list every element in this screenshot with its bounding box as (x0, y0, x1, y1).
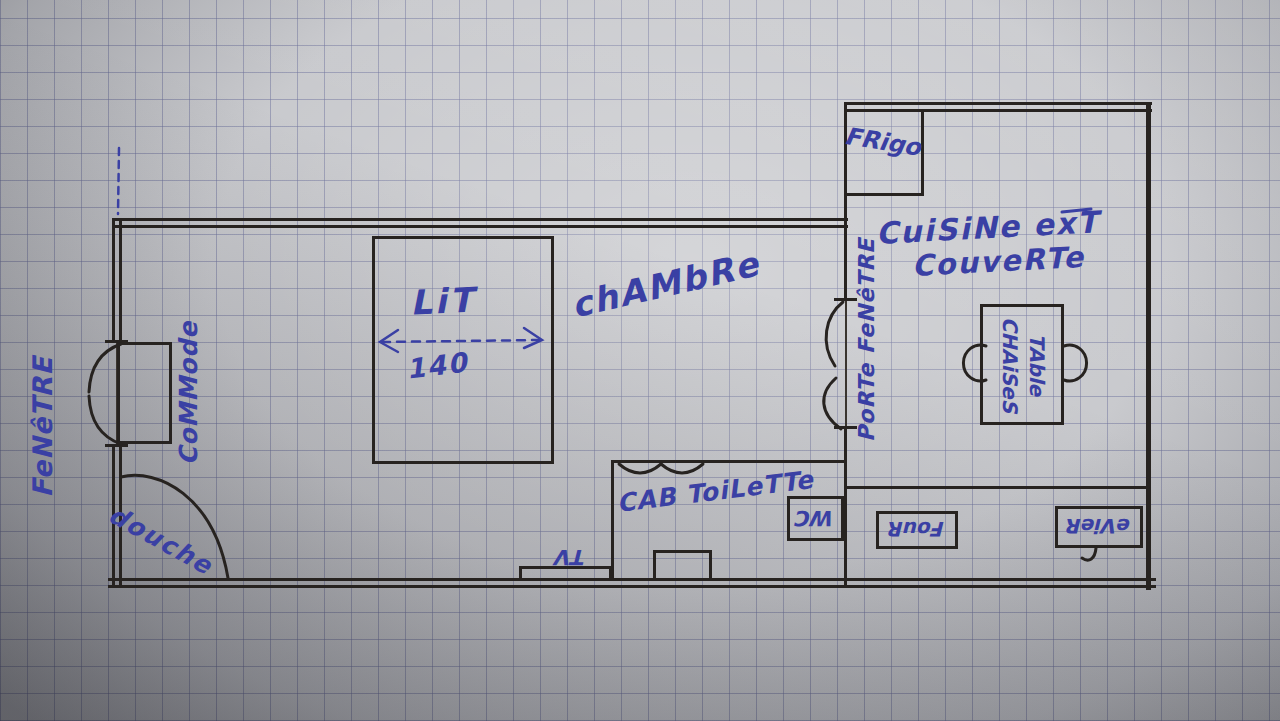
porte-fenetre-swing-top (826, 302, 843, 366)
graph-paper-photo: LiT 140 chAMbRe CAB ToiLeTTe TV WC FouR … (0, 0, 1280, 721)
window-swing-arc-bottom (89, 396, 121, 444)
label-fenetre: FeNêTRE (24, 353, 60, 501)
label-porte-fenetre: PoRTe FeNêTRE (850, 245, 882, 435)
label-tv: TV (556, 545, 587, 569)
label-lit: LiT (409, 279, 477, 322)
label-chaises: CHAiSeS (996, 307, 1023, 423)
pencil-dashed-line (118, 148, 119, 214)
label-evier: eVieR (1055, 508, 1143, 545)
label-table: TAble (1023, 307, 1050, 423)
evier-hook (1082, 548, 1096, 560)
bed-width-arrowhead-right (524, 328, 542, 348)
toilette-door-scallop-right (661, 464, 703, 473)
label-four: FouR (876, 512, 958, 547)
chair-right-arc (1064, 345, 1087, 381)
label-wc: WC (787, 498, 844, 539)
label-table-chaises: TAble CHAiSeS (994, 307, 1050, 423)
chair-left-arc (963, 345, 986, 381)
label-commode: CoMMode (171, 321, 205, 465)
toilette-door-scallop-left (619, 464, 661, 473)
bed-width-arrow-dashes (382, 340, 540, 342)
window-swing-arc-top (89, 344, 121, 392)
porte-fenetre-swing-bottom (824, 378, 841, 429)
